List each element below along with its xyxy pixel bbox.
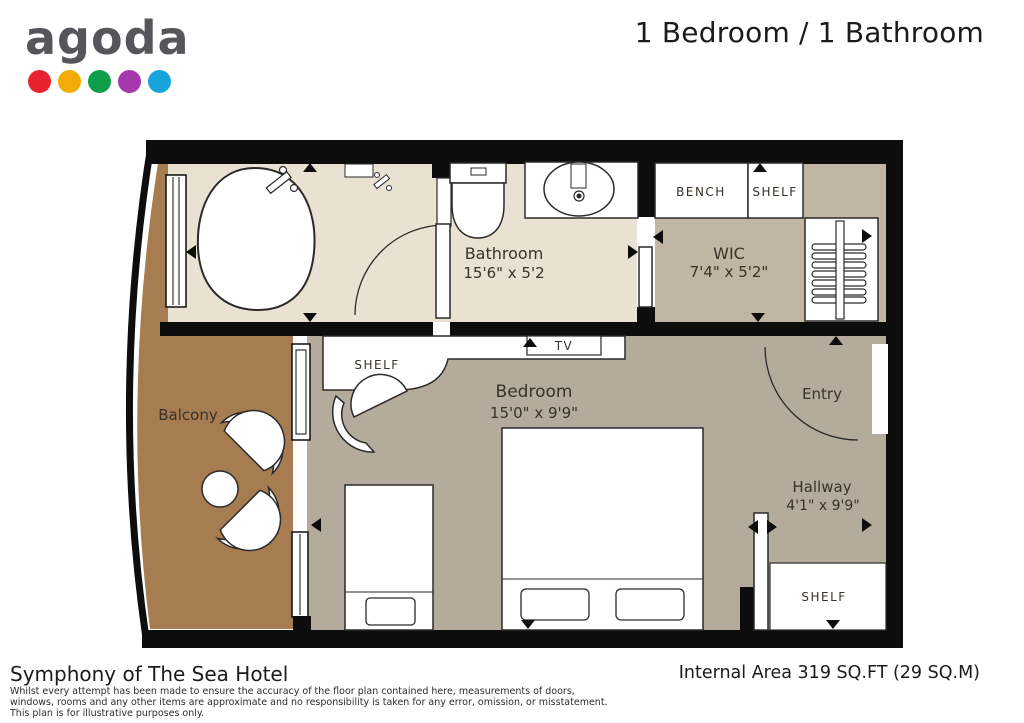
disclaimer-line: This plan is for illustrative purposes o… <box>10 709 670 720</box>
entry-label: Entry <box>802 385 842 403</box>
disclaimer: Whilst every attempt has been made to en… <box>10 687 670 719</box>
bathroom-window <box>166 175 186 307</box>
bathroom-dims: 15'6" x 5'2 <box>463 264 544 282</box>
hallway-label: Hallway <box>792 478 851 496</box>
pillow <box>521 589 589 620</box>
internal-area: Internal Area 319 SQ.FT (29 SQ.M) <box>679 663 980 683</box>
bench-label: BENCH <box>676 185 726 199</box>
tv-label: TV <box>554 339 574 353</box>
wic-dims: 7'4" x 5'2" <box>690 263 769 281</box>
wic-shelf-label: SHELF <box>752 185 797 199</box>
sink-vanity <box>525 162 638 218</box>
bathroom-door-opening <box>433 322 450 336</box>
balcony-slider-base <box>293 616 311 631</box>
single-bed <box>345 485 433 630</box>
hotel-name: Symphony of The Sea Hotel <box>10 662 288 686</box>
wic-label: WIC <box>713 244 745 263</box>
shower-niche <box>345 164 373 177</box>
bedroom-label: Bedroom <box>496 382 573 402</box>
entry-door-opening <box>872 344 888 434</box>
wic-door-leaf <box>639 247 652 307</box>
hallway-shelf-label: SHELF <box>801 590 846 604</box>
bathroom-door-leaf <box>436 224 450 318</box>
double-bed <box>502 428 703 630</box>
floor-plan-page: agoda 1 Bedroom / 1 Bathroom <box>0 0 1024 723</box>
disclaimer-line: windows, rooms and any other items are a… <box>10 698 670 709</box>
bedroom-shelf-label: SHELF <box>354 358 399 372</box>
toilet <box>450 163 506 238</box>
bedroom-dims: 15'0" x 9'9" <box>490 404 578 422</box>
bathroom-label: Bathroom <box>465 244 544 263</box>
bathroom-partition <box>437 178 451 226</box>
balcony-table <box>202 471 238 507</box>
hallway-dims: 4'1" x 9'9" <box>786 498 859 514</box>
balcony-label: Balcony <box>158 406 218 424</box>
floor-plan: Bathroom 15'6" x 5'2 WIC 7'4" x 5'2" BEN… <box>0 0 1024 723</box>
pillow <box>366 598 415 625</box>
pillow <box>616 589 684 620</box>
